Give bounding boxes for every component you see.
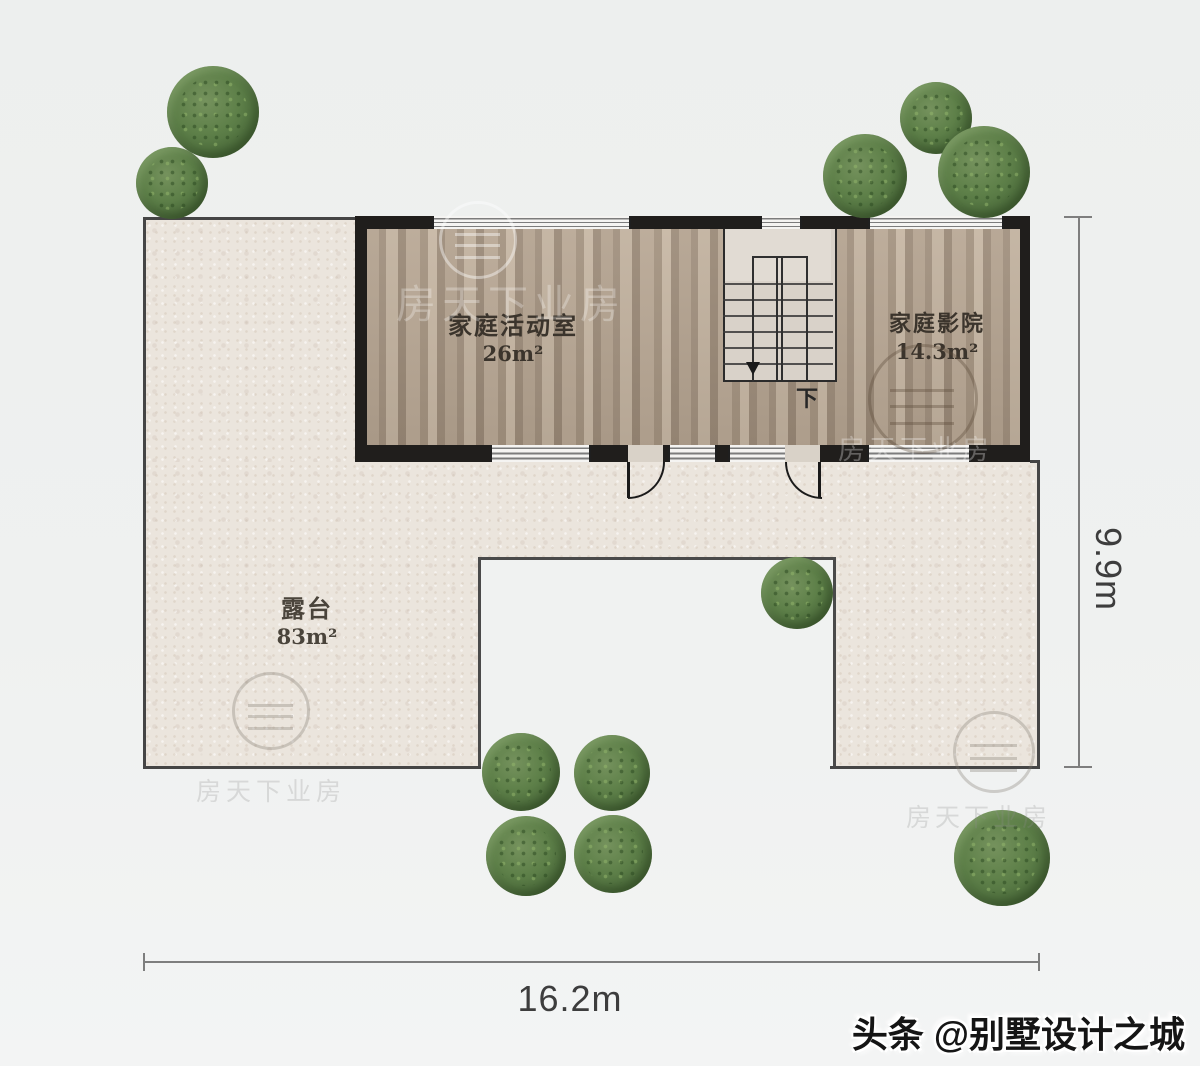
room-label-terrace: 露台 83m²: [247, 594, 367, 650]
tree: [136, 147, 208, 219]
dimension-tick: [1064, 766, 1092, 768]
terrace-border-right: [1037, 460, 1040, 769]
tree: [486, 816, 566, 896]
tree: [574, 815, 652, 893]
dimension-tick: [143, 953, 145, 971]
stair-divider: [776, 256, 778, 380]
door-opening-left: [628, 445, 663, 462]
room-name: 家庭影院: [858, 311, 1016, 339]
terrace-border-bottom-left: [143, 766, 481, 769]
stair-down-arrow-icon: [746, 362, 760, 375]
room-name: 露台: [247, 594, 367, 624]
window-bottom-1: [490, 445, 591, 462]
tree: [167, 66, 259, 158]
dimension-width-label: 16.2m: [460, 978, 680, 1020]
terrace-border-right-top: [1030, 460, 1040, 463]
stair-down-label: 下: [796, 381, 818, 413]
stair-divider: [781, 256, 783, 380]
door-leaf-right: [818, 462, 821, 498]
terrace-border-left: [143, 217, 146, 769]
dimension-tick: [1064, 216, 1092, 218]
brand-watermark: 头条 @别墅设计之城: [852, 1006, 1185, 1058]
window-bottom-3: [728, 445, 792, 462]
tree: [823, 134, 907, 218]
dimension-line-bottom: [143, 961, 1040, 963]
ghost-text-watermark: 房天下业房: [838, 428, 993, 467]
room-area: 83m²: [247, 624, 367, 650]
room-area: 26m²: [403, 341, 623, 367]
window-top-2: [760, 216, 802, 229]
tree: [574, 735, 650, 811]
tree: [482, 733, 560, 811]
tree: [938, 126, 1030, 218]
ghost-logo-watermark: [232, 672, 310, 750]
window-bottom-2: [668, 445, 717, 462]
dimension-height-label: 9.9m: [1087, 509, 1129, 629]
ghost-logo-watermark: [439, 201, 517, 279]
ghost-text-watermark: 房天下业房: [906, 798, 1051, 834]
ghost-logo-watermark: [953, 711, 1035, 793]
door-leaf-left: [627, 462, 630, 498]
dimension-tick: [1038, 953, 1040, 971]
ghost-text-watermark: 房天下业房: [196, 772, 346, 808]
dimension-line-right: [1078, 216, 1080, 768]
floor-plan-canvas: 下 家庭活动室 26m² 家庭影院 14.3m² 露台 83m² 16.2m 9…: [0, 0, 1200, 1066]
ghost-text-watermark: 房天下业房: [396, 272, 626, 330]
door-opening-right: [785, 445, 820, 462]
stair-rail: [752, 256, 808, 382]
tree: [761, 557, 833, 629]
